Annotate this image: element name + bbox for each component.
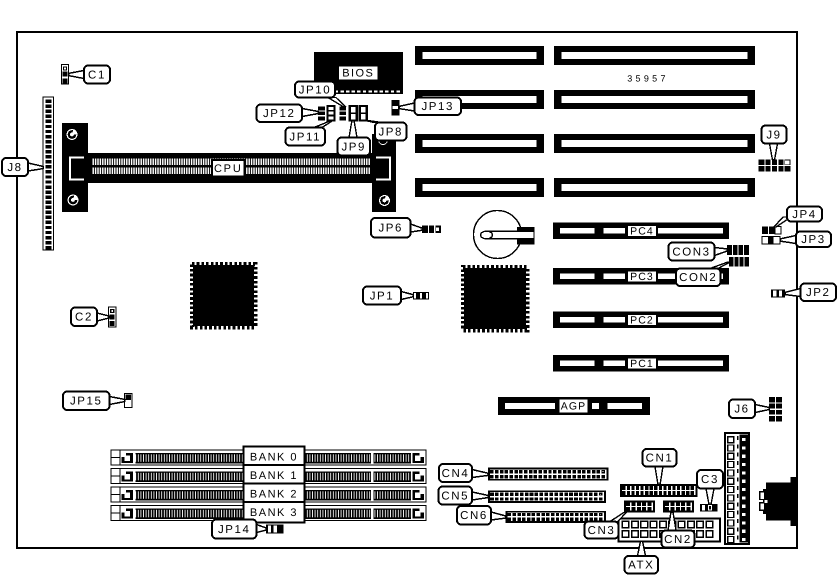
- svg-text:JP8: JP8: [378, 126, 403, 138]
- svg-text:JP4: JP4: [792, 209, 817, 221]
- svg-text:JP15: JP15: [70, 396, 103, 408]
- svg-text:PC2: PC2: [630, 315, 654, 327]
- svg-text:CN3: CN3: [588, 525, 616, 537]
- svg-text:C2: C2: [75, 312, 93, 324]
- svg-text:JP6: JP6: [378, 223, 403, 235]
- svg-text:C3: C3: [701, 474, 719, 486]
- svg-text:ATX: ATX: [628, 560, 654, 572]
- svg-text:JP9: JP9: [341, 141, 366, 153]
- svg-text:JP2: JP2: [806, 287, 831, 299]
- svg-text:BANK 1: BANK 1: [250, 470, 298, 482]
- svg-text:CN4: CN4: [442, 468, 470, 480]
- svg-text:JP1: JP1: [370, 290, 395, 302]
- svg-text:J9: J9: [766, 129, 781, 141]
- svg-text:AGP: AGP: [561, 401, 586, 413]
- svg-text:BANK 2: BANK 2: [250, 489, 298, 501]
- svg-text:BANK 0: BANK 0: [250, 452, 298, 464]
- svg-text:JP11: JP11: [289, 131, 321, 143]
- svg-text:BIOS: BIOS: [342, 68, 374, 80]
- svg-text:J8: J8: [7, 162, 22, 174]
- svg-text:BANK 3: BANK 3: [250, 507, 298, 519]
- svg-text:CN5: CN5: [441, 490, 469, 502]
- svg-text:C1: C1: [88, 69, 106, 81]
- svg-text:JP10: JP10: [299, 84, 332, 96]
- svg-text:CN1: CN1: [646, 453, 674, 465]
- svg-text:J6: J6: [734, 404, 749, 416]
- svg-text:CON3: CON3: [672, 246, 710, 258]
- svg-text:JP12: JP12: [263, 108, 296, 120]
- svg-text:JP3: JP3: [801, 234, 826, 246]
- svg-text:PC3: PC3: [630, 271, 654, 283]
- svg-text:PC1: PC1: [630, 358, 654, 370]
- svg-text:35957: 35957: [627, 74, 669, 84]
- svg-text:JP13: JP13: [421, 101, 454, 113]
- svg-text:CN6: CN6: [460, 510, 488, 522]
- svg-text:CON2: CON2: [679, 272, 717, 284]
- svg-text:CN2: CN2: [664, 534, 692, 546]
- svg-text:JP14: JP14: [218, 524, 251, 536]
- svg-text:CPU: CPU: [214, 163, 243, 175]
- svg-text:PC4: PC4: [630, 226, 654, 238]
